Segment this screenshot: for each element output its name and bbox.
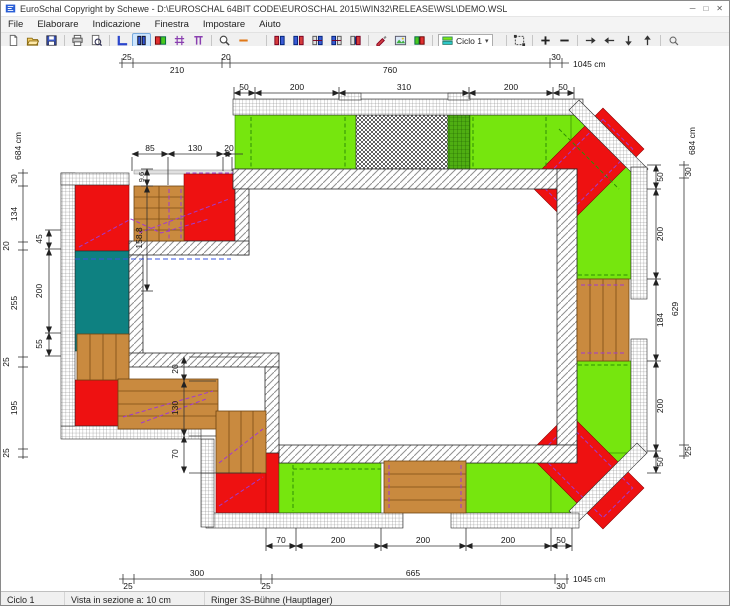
svg-text:134: 134 <box>9 207 19 221</box>
svg-text:30: 30 <box>556 581 566 591</box>
svg-text:310: 310 <box>397 82 411 92</box>
svg-text:45: 45 <box>34 234 44 244</box>
status-bar: Ciclo 1 Vista in sezione a: 10 cm Ringer… <box>1 591 730 606</box>
app-window: EuroSchal Copyright by Schewe - D:\EUROS… <box>0 0 730 606</box>
app-icon <box>5 3 16 14</box>
svg-text:130: 130 <box>188 143 202 153</box>
svg-text:684 cm: 684 cm <box>687 127 697 155</box>
svg-text:200: 200 <box>290 82 304 92</box>
svg-text:200: 200 <box>655 227 665 241</box>
dim-right-inner: 50 200 184 200 50 <box>647 165 665 473</box>
close-button[interactable]: ✕ <box>716 4 723 13</box>
svg-text:20: 20 <box>224 143 234 153</box>
svg-text:200: 200 <box>416 535 430 545</box>
maximize-button[interactable]: □ <box>703 4 708 13</box>
svg-text:300: 300 <box>190 568 204 578</box>
svg-text:25: 25 <box>122 52 132 62</box>
dim-bottom-outer: 25 300 25 665 30 1045 cm <box>119 568 606 591</box>
svg-text:70: 70 <box>170 449 180 459</box>
dim-right-outer: 684 cm 30 629 25 <box>670 127 697 459</box>
menu-elaborare[interactable]: Elaborare <box>30 17 85 32</box>
menu-finestra[interactable]: Finestra <box>148 17 196 32</box>
platform-step <box>216 411 266 473</box>
formwork-plan: 25 210 20 760 30 1045 cm 50 200 310 200 … <box>1 46 730 591</box>
svg-text:158.8: 158.8 <box>134 227 144 249</box>
drawing-canvas[interactable]: 25 210 20 760 30 1045 cm 50 200 310 200 … <box>1 46 730 591</box>
menu-bar: File Elaborare Indicazione Finestra Impo… <box>1 17 729 33</box>
svg-text:70: 70 <box>276 535 286 545</box>
menu-impostare[interactable]: Impostare <box>196 17 252 32</box>
dim-top-inner: 50 200 310 200 50 <box>234 82 574 99</box>
title-bar: EuroSchal Copyright by Schewe - D:\EUROS… <box>1 1 729 17</box>
svg-text:50: 50 <box>558 82 568 92</box>
svg-text:30: 30 <box>551 52 561 62</box>
status-view-section: Vista in sezione a: 10 cm <box>65 592 205 606</box>
svg-text:629: 629 <box>670 302 680 316</box>
svg-text:9.6: 9.6 <box>137 172 146 182</box>
platform-bottom <box>384 461 466 513</box>
platform-right <box>577 279 629 361</box>
svg-text:20: 20 <box>170 364 180 374</box>
svg-text:50: 50 <box>655 457 665 467</box>
svg-text:85: 85 <box>145 143 155 153</box>
menu-file[interactable]: File <box>1 17 30 32</box>
cycle-color-icon <box>442 35 453 46</box>
status-cycle: Ciclo 1 <box>1 592 65 606</box>
svg-text:200: 200 <box>501 535 515 545</box>
svg-text:25: 25 <box>123 581 133 591</box>
menu-aiuto[interactable]: Aiuto <box>252 17 288 32</box>
dim-left-inner: 45 200 55 <box>34 230 61 356</box>
menu-indicazione[interactable]: Indicazione <box>86 17 148 32</box>
svg-text:760: 760 <box>383 65 397 75</box>
svg-text:200: 200 <box>504 82 518 92</box>
svg-text:665: 665 <box>406 568 420 578</box>
window-title: EuroSchal Copyright by Schewe - D:\EUROS… <box>20 4 507 14</box>
svg-text:20: 20 <box>221 52 231 62</box>
svg-text:50: 50 <box>655 172 665 182</box>
svg-text:684 cm: 684 cm <box>13 132 23 160</box>
dim-left-outer: 684 cm 30 134 20 255 25 195 25 <box>1 132 28 459</box>
dim-top-outer: 25 210 20 760 30 1045 cm <box>119 52 606 75</box>
svg-text:25: 25 <box>683 446 693 456</box>
svg-text:25: 25 <box>1 357 11 367</box>
svg-text:25: 25 <box>261 581 271 591</box>
svg-text:200: 200 <box>34 284 44 298</box>
svg-text:130: 130 <box>170 401 180 415</box>
svg-text:20: 20 <box>1 241 11 251</box>
svg-text:210: 210 <box>170 65 184 75</box>
svg-text:1045 cm: 1045 cm <box>573 574 606 584</box>
dim-bottom-inner: 70 200 200 200 50 <box>266 528 572 551</box>
svg-text:55: 55 <box>34 339 44 349</box>
cycle-select-value: Ciclo 1 <box>456 36 482 46</box>
status-formwork-system: Ringer 3S-Bühne (Hauptlager) <box>205 592 501 606</box>
svg-text:50: 50 <box>556 535 566 545</box>
svg-text:30: 30 <box>9 174 19 184</box>
svg-text:50: 50 <box>239 82 249 92</box>
svg-text:1045 cm: 1045 cm <box>573 59 606 69</box>
svg-text:30: 30 <box>683 167 693 177</box>
minimize-button[interactable]: ─ <box>690 4 696 13</box>
platform-wing <box>77 334 129 380</box>
svg-text:200: 200 <box>331 535 345 545</box>
svg-text:255: 255 <box>9 296 19 310</box>
svg-text:184: 184 <box>655 313 665 327</box>
chevron-down-icon: ▾ <box>485 37 489 45</box>
svg-text:195: 195 <box>9 401 19 415</box>
status-empty <box>501 592 730 606</box>
svg-text:200: 200 <box>655 399 665 413</box>
svg-text:25: 25 <box>1 448 11 458</box>
